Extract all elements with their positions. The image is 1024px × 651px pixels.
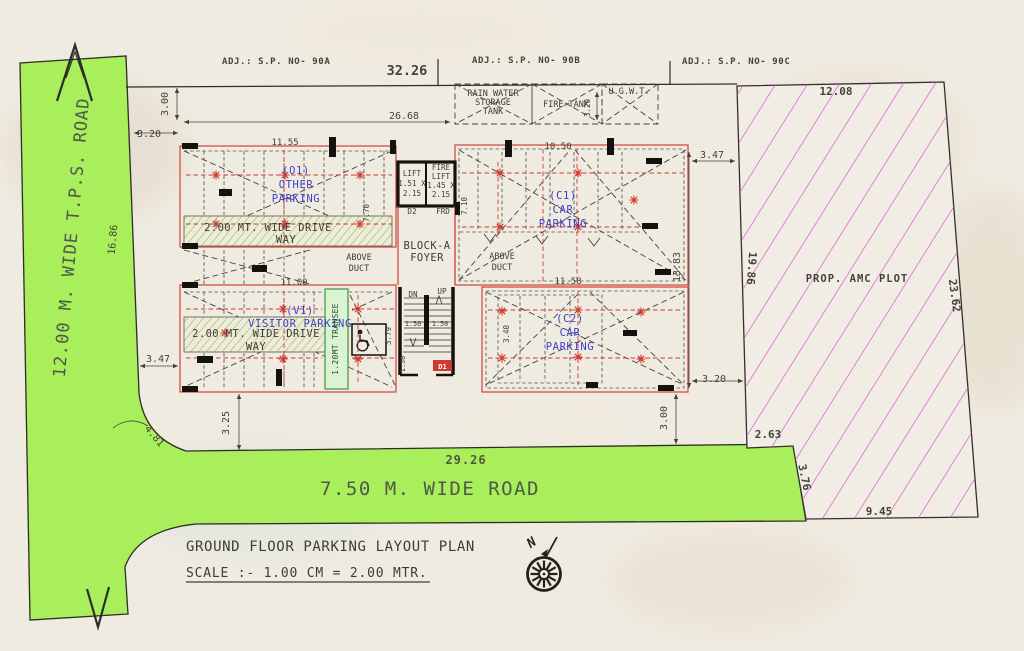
c2-parking-label-3: PARKING bbox=[546, 341, 594, 353]
foyer-label-2: FOYER bbox=[410, 252, 444, 264]
above-duct-1-label-2: DUCT bbox=[349, 264, 369, 274]
driveway-1-label: 2.00 MT. WIDE DRIVE bbox=[204, 222, 332, 234]
adjacent-plot-a-label: ADJ.: S.P. NO- 90A bbox=[222, 57, 330, 67]
c1-parking-label-2: CAR bbox=[553, 204, 574, 216]
dim-core-left: 7.70 bbox=[362, 203, 371, 222]
dim-left-lower: 3.47 bbox=[146, 354, 170, 365]
dim-core-right: 7.10 bbox=[460, 196, 469, 215]
above-duct-2-label: ABOVE bbox=[489, 252, 515, 262]
dim-c2-width: 11.58 bbox=[554, 277, 581, 287]
stair-up-label: UP bbox=[437, 287, 447, 296]
door-d1-label: D1 bbox=[438, 363, 446, 371]
dim-plot-left: 19.86 bbox=[744, 251, 759, 285]
lift-size: 1.51 X bbox=[398, 179, 426, 188]
dim-plot-top: 12.08 bbox=[819, 85, 852, 98]
dim-o1-width: 11.55 bbox=[271, 138, 298, 148]
dim-plot-step: 2.63 bbox=[755, 428, 782, 441]
o1-parking-label-3: PARKING bbox=[272, 193, 320, 205]
sheet-title: GROUND FLOOR PARKING LAYOUT PLAN bbox=[186, 539, 475, 555]
fire-lift-label: FIRE bbox=[432, 163, 451, 172]
sheet-scale: SCALE :- 1.00 CM = 2.00 MTR. bbox=[186, 566, 428, 581]
fire-lift-size: 1.45 X bbox=[427, 181, 455, 190]
door-d2-label: D2 bbox=[407, 207, 416, 216]
dim-stair-exit: 1.50 bbox=[399, 356, 407, 372]
dim-inner-top: 26.68 bbox=[389, 111, 419, 122]
above-duct-1-label: ABOVE bbox=[346, 253, 372, 263]
fire-lift-size-2: 2.15 bbox=[432, 190, 450, 199]
dim-stair-depth: 3.40 bbox=[502, 324, 511, 343]
adjacent-plot-c-label: ADJ.: S.P. NO- 90C bbox=[682, 57, 790, 67]
dim-left-bottom: 3.25 bbox=[221, 411, 232, 435]
dim-right-height: 13.83 bbox=[672, 252, 683, 282]
lift-label: LIFT bbox=[403, 169, 422, 178]
dim-left-top: 3.00 bbox=[160, 92, 171, 116]
dim-left-upper: 3.20 bbox=[137, 129, 161, 140]
dim-right-gap-bottom: 3.20 bbox=[702, 374, 726, 385]
drawing-sheet: ADJ.: S.P. NO- 90A ADJ.: S.P. NO- 90B AD… bbox=[0, 0, 1024, 651]
dim-right-lower: 3.00 bbox=[659, 406, 670, 430]
bottom-road-label: 7.50 M. WIDE ROAD bbox=[320, 478, 540, 500]
dim-stair-flight-left: 1.50 bbox=[405, 320, 421, 328]
driveway-1-label-2: WAY bbox=[276, 234, 296, 246]
dim-v1-width: 11.00 bbox=[280, 278, 307, 288]
stair-dn-label: DN bbox=[408, 290, 418, 299]
driveway-2-label: 2.00 MT. WIDE DRIVE bbox=[192, 328, 320, 340]
dim-ugwt-width: 3.20 bbox=[583, 98, 592, 117]
dim-boundary-top: 32.26 bbox=[387, 63, 428, 79]
north-label: N bbox=[524, 535, 540, 552]
lift-size-2: 2.15 bbox=[403, 189, 421, 198]
dim-lobby-width: 3.79 bbox=[384, 327, 393, 345]
ugwt-label: U.G.W.T. bbox=[609, 87, 650, 97]
foyer-label: BLOCK-A bbox=[403, 240, 450, 252]
fire-lift-label-2: LIFT bbox=[432, 172, 451, 181]
c1-parking-label-3: PARKING bbox=[539, 218, 587, 230]
dim-stair-flight-right: 1.50 bbox=[432, 320, 448, 328]
c2-parking-label-2: CAR bbox=[560, 327, 581, 339]
above-duct-2-label-2: DUCT bbox=[492, 263, 512, 273]
c1-parking-label: (C1) bbox=[549, 190, 577, 202]
compass-icon: N bbox=[524, 535, 561, 591]
o1-parking-label: (O1) bbox=[282, 165, 310, 177]
rain-tank-label-3: TANK bbox=[483, 107, 504, 117]
o1-parking-label-2: OTHER bbox=[279, 179, 314, 191]
dim-right-gap-top: 3.47 bbox=[700, 150, 724, 161]
site-plan-canvas: ADJ.: S.P. NO- 90A ADJ.: S.P. NO- 90B AD… bbox=[0, 0, 1024, 651]
dim-road-bottom-length: 29.26 bbox=[445, 453, 486, 467]
amc-plot-label: PROP. AMC PLOT bbox=[806, 273, 909, 285]
dim-c1-width: 10.50 bbox=[544, 142, 571, 152]
stair-core bbox=[400, 287, 453, 375]
driveway-2-label-2: WAY bbox=[246, 341, 266, 353]
block-c2-car-parking bbox=[482, 287, 688, 392]
transfer-strip-label: 1.20MT TRANSEE bbox=[331, 303, 340, 375]
dimension-lines bbox=[113, 88, 743, 450]
adjacent-plot-b-label: ADJ.: S.P. NO- 90B bbox=[472, 56, 580, 66]
door-frd-label: FRD bbox=[436, 207, 450, 216]
v1-parking-label: (V1) bbox=[286, 305, 314, 317]
wheelchair-icon bbox=[352, 324, 386, 355]
dim-plot-bottom: 9.45 bbox=[866, 505, 893, 518]
c2-parking-label: (C2) bbox=[556, 313, 584, 325]
